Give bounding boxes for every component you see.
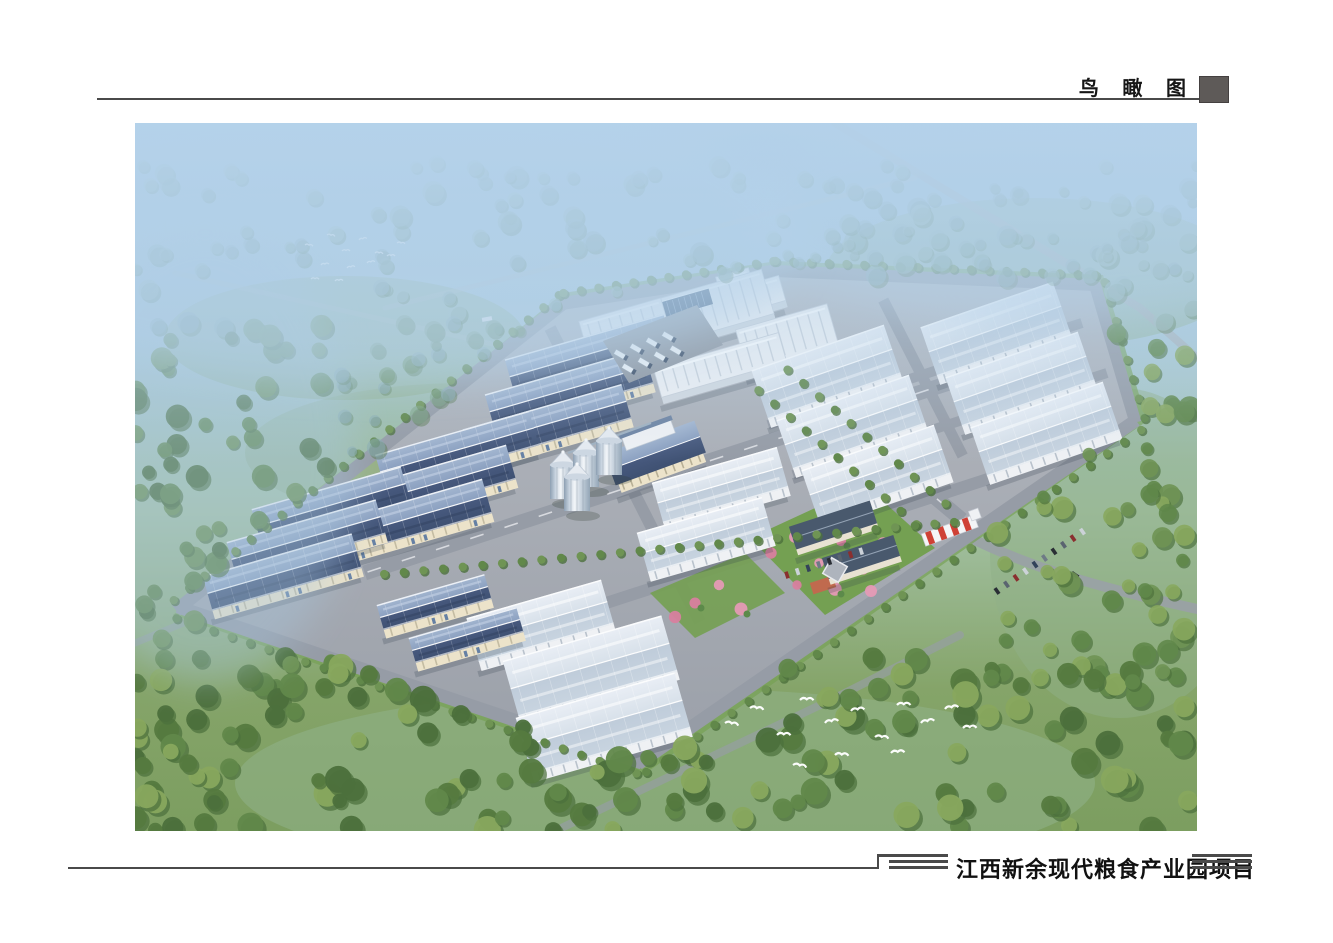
aerial-rendering-scene xyxy=(135,123,1197,831)
footer-deco-line xyxy=(1192,860,1252,863)
footer-deco-line xyxy=(1192,866,1252,869)
haze-overlay xyxy=(135,123,1197,831)
presentation-sheet: 鸟 瞰 图 江西新余现代粮食产业园项目 xyxy=(0,0,1333,943)
footer-deco-line xyxy=(889,860,948,863)
view-title-label: 鸟 瞰 图 xyxy=(1079,72,1195,101)
header-rule xyxy=(97,98,1229,100)
aerial-rendering xyxy=(135,123,1197,831)
footer-deco-line xyxy=(877,854,948,857)
footer-rule xyxy=(68,867,878,869)
footer-deco-line xyxy=(1192,854,1252,857)
footer-deco-line xyxy=(889,866,948,869)
title-block-square xyxy=(1199,76,1229,103)
